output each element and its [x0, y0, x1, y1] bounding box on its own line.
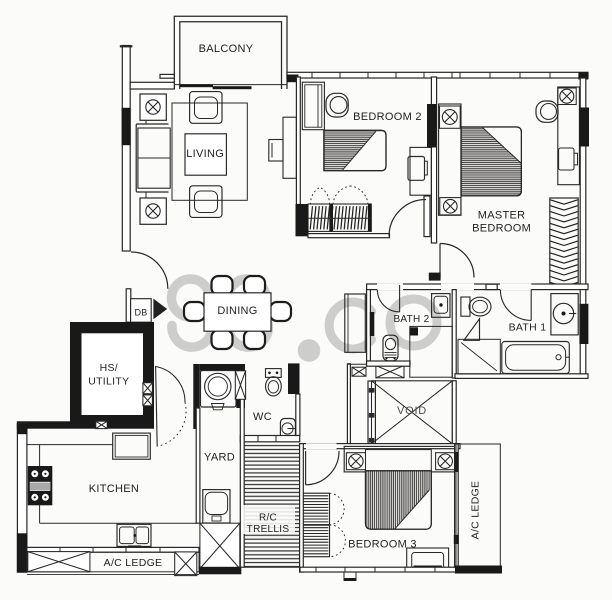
- svg-text:TRELLIS: TRELLIS: [247, 524, 290, 535]
- svg-text:A/C LEDGE: A/C LEDGE: [104, 557, 163, 569]
- svg-text:VOID: VOID: [397, 405, 427, 417]
- svg-text:BEDROOM 3: BEDROOM 3: [348, 539, 417, 551]
- svg-text:MASTER: MASTER: [478, 209, 526, 221]
- svg-text:A/C LEDGE: A/C LEDGE: [470, 481, 482, 540]
- svg-text:DINING: DINING: [217, 305, 257, 317]
- svg-text:KITCHEN: KITCHEN: [89, 483, 139, 495]
- svg-text:BEDROOM: BEDROOM: [472, 223, 531, 235]
- svg-text:DB: DB: [134, 307, 147, 317]
- svg-text:R/C: R/C: [259, 513, 277, 524]
- svg-text:UTILITY: UTILITY: [88, 376, 129, 388]
- svg-text:BALCONY: BALCONY: [199, 43, 254, 55]
- svg-text:HS/: HS/: [100, 362, 118, 374]
- svg-text:WC: WC: [253, 411, 272, 423]
- svg-text:BATH 2: BATH 2: [393, 314, 429, 325]
- svg-text:YARD: YARD: [204, 452, 235, 464]
- svg-text:LIVING: LIVING: [186, 148, 224, 160]
- svg-text:BATH 1: BATH 1: [509, 322, 547, 334]
- svg-text:BEDROOM 2: BEDROOM 2: [353, 111, 422, 123]
